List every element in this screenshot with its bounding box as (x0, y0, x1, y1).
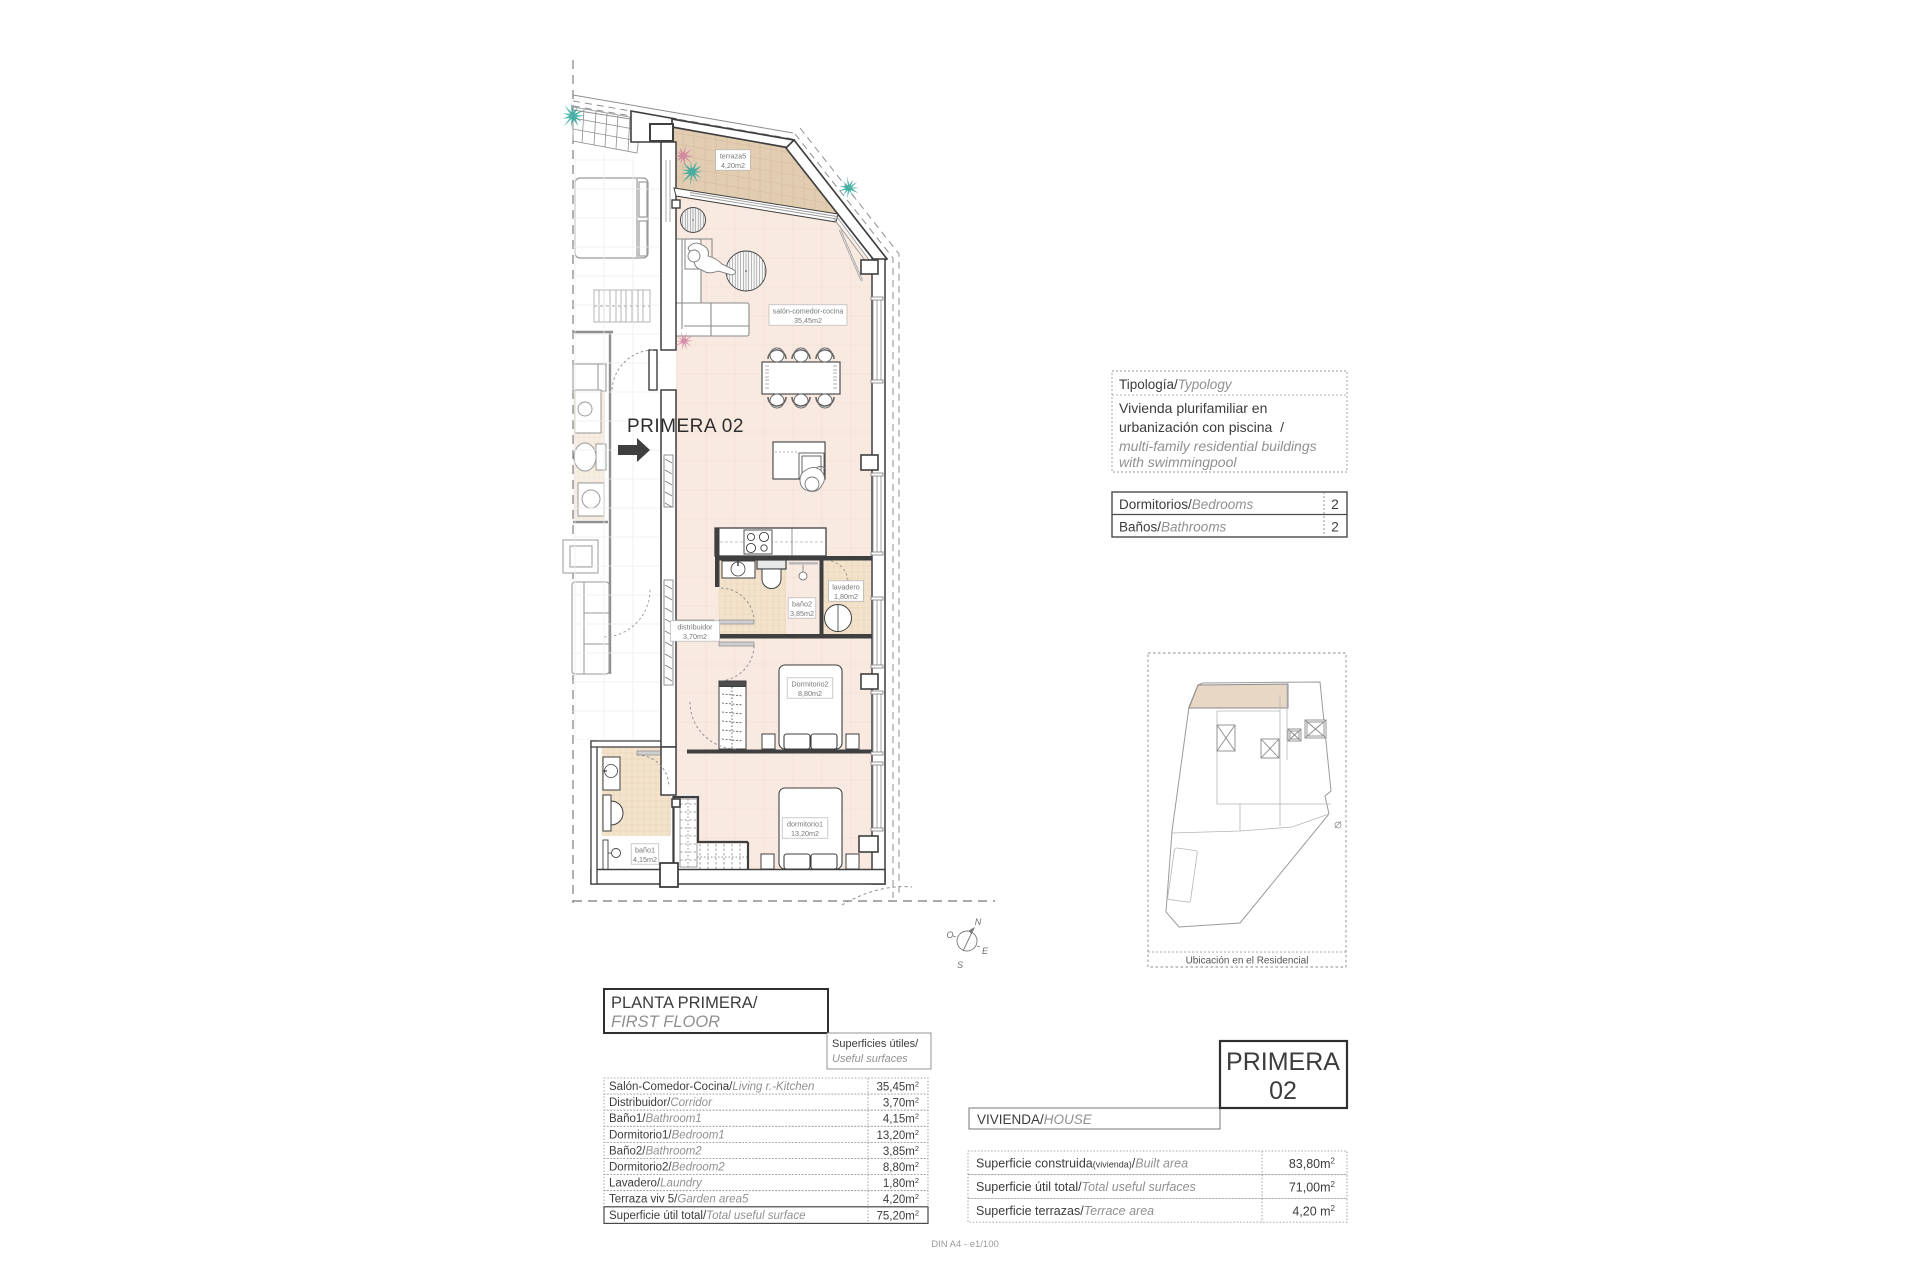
svg-text:8,80m2: 8,80m2 (883, 1160, 919, 1174)
svg-text:Dormitorios/Bedrooms: Dormitorios/Bedrooms (1119, 497, 1254, 512)
svg-text:Baño2/Bathroom2: Baño2/Bathroom2 (609, 1145, 702, 1157)
svg-text:2: 2 (1331, 497, 1339, 512)
svg-text:lavadero: lavadero (832, 583, 860, 592)
svg-text:83,80m2: 83,80m2 (1289, 1157, 1336, 1172)
svg-text:1,80m2: 1,80m2 (834, 592, 858, 601)
svg-text:distribuidor: distribuidor (677, 623, 713, 632)
svg-text:VIVIENDA/HOUSE: VIVIENDA/HOUSE (977, 1112, 1093, 1127)
svg-text:salón-comedor-cocina: salón-comedor-cocina (773, 307, 844, 316)
svg-text:13,20m2: 13,20m2 (876, 1128, 919, 1142)
svg-text:Dormitorio1/Bedroom1: Dormitorio1/Bedroom1 (609, 1129, 725, 1141)
svg-text:3,70m2: 3,70m2 (683, 632, 707, 641)
svg-text:Baño1/Bathroom1: Baño1/Bathroom1 (609, 1113, 702, 1125)
svg-text:3,70m2: 3,70m2 (883, 1096, 919, 1110)
svg-text:Distribuidor/Corridor: Distribuidor/Corridor (609, 1097, 713, 1109)
svg-text:4,20m2: 4,20m2 (883, 1192, 919, 1206)
svg-text:Lavadero/Laundry: Lavadero/Laundry (609, 1178, 703, 1190)
svg-text:O: O (946, 930, 953, 940)
svg-text:3,85m2: 3,85m2 (883, 1144, 919, 1158)
svg-text:PRIMERA 02: PRIMERA 02 (627, 416, 744, 437)
svg-text:8,80m2: 8,80m2 (798, 689, 822, 698)
svg-text:Vivienda plurifamiliar en: Vivienda plurifamiliar en (1119, 400, 1267, 416)
svg-text:1,80m2: 1,80m2 (883, 1176, 919, 1190)
svg-text:terraza5: terraza5 (720, 152, 746, 161)
svg-text:2: 2 (1331, 520, 1339, 535)
svg-text:Superficie construida(vivienda: Superficie construida(vivienda)/Built ar… (976, 1157, 1188, 1171)
svg-text:baño1: baño1 (635, 846, 655, 855)
svg-text:Baños/Bathrooms: Baños/Bathrooms (1119, 520, 1227, 535)
svg-text:N: N (975, 917, 982, 927)
svg-text:Terraza viv 5/Garden area5: Terraza viv 5/Garden area5 (609, 1194, 749, 1206)
svg-text:PRIMERA: PRIMERA (1226, 1048, 1340, 1076)
svg-text:4,20m2: 4,20m2 (721, 161, 745, 170)
svg-text:3,85m2: 3,85m2 (790, 609, 814, 618)
svg-text:02: 02 (1269, 1077, 1297, 1105)
svg-text:Useful surfaces: Useful surfaces (832, 1053, 908, 1065)
svg-text:with swimmingpool: with swimmingpool (1119, 454, 1237, 470)
svg-text:Dormitorio2: Dormitorio2 (791, 680, 828, 689)
svg-text:13,20m2: 13,20m2 (791, 829, 819, 838)
svg-text:dormitorio1: dormitorio1 (787, 820, 823, 829)
svg-text:Superficie útil total/Total us: Superficie útil total/Total useful surfa… (976, 1180, 1196, 1194)
svg-text:E: E (982, 946, 989, 956)
svg-text:DIN A4 - e1/100: DIN A4 - e1/100 (931, 1239, 999, 1250)
svg-text:Superficie terrazas/Terrace ar: Superficie terrazas/Terrace area (976, 1204, 1154, 1218)
svg-text:FIRST FLOOR: FIRST FLOOR (611, 1013, 720, 1031)
svg-text:35,45m2: 35,45m2 (876, 1080, 919, 1094)
svg-text:S: S (957, 960, 963, 970)
svg-text:71,00m2: 71,00m2 (1289, 1180, 1336, 1195)
svg-text:4,15m2: 4,15m2 (883, 1112, 919, 1126)
svg-text:Tipología/Typology: Tipología/Typology (1119, 377, 1233, 392)
svg-text:Superficie útil total/Total us: Superficie útil total/Total useful surfa… (609, 1210, 805, 1222)
svg-text:multi-family residential build: multi-family residential buildings (1119, 438, 1317, 454)
svg-text:Superficies útiles/: Superficies útiles/ (832, 1038, 919, 1050)
svg-text:PLANTA PRIMERA/: PLANTA PRIMERA/ (611, 994, 758, 1012)
svg-text:Salón-Comedor-Cocina/Living r.: Salón-Comedor-Cocina/Living r.-Kitchen (609, 1081, 814, 1093)
svg-text:4,20 m2: 4,20 m2 (1292, 1204, 1335, 1219)
svg-text:75,20m2: 75,20m2 (876, 1208, 919, 1222)
svg-text:35,45m2: 35,45m2 (794, 316, 822, 325)
svg-text:Ubicación en el Residencial: Ubicación en el Residencial (1186, 956, 1309, 967)
svg-text:Dormitorio2/Bedroom2: Dormitorio2/Bedroom2 (609, 1162, 725, 1174)
svg-text:baño2: baño2 (792, 600, 812, 609)
svg-text:urbanización con piscina /: urbanización con piscina / (1119, 419, 1284, 435)
svg-text:4,15m2: 4,15m2 (633, 855, 657, 864)
